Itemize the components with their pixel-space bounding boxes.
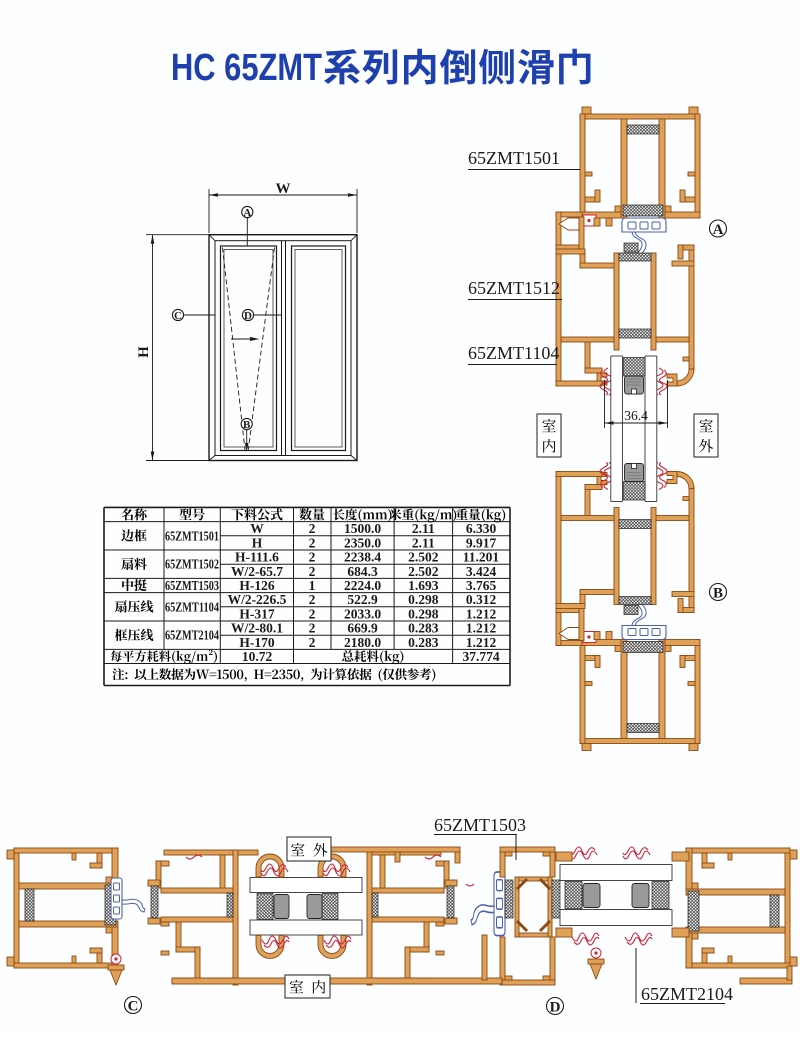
svg-text:65ZMT2104: 65ZMT2104	[165, 628, 219, 643]
svg-text:HC 65ZMT: HC 65ZMT	[171, 47, 322, 89]
svg-text:522.9: 522.9	[347, 592, 378, 607]
svg-text:2.11: 2.11	[412, 535, 435, 550]
svg-text:2.502: 2.502	[408, 550, 439, 565]
svg-text:2: 2	[309, 550, 316, 565]
svg-text:W/2-80.1: W/2-80.1	[231, 621, 283, 636]
svg-text:2: 2	[309, 606, 316, 621]
svg-text:D: D	[244, 310, 252, 322]
svg-text:1.212: 1.212	[466, 635, 497, 650]
svg-text:65ZMT1104: 65ZMT1104	[468, 343, 559, 363]
svg-text:0.283: 0.283	[408, 635, 439, 650]
svg-text:H-317: H-317	[239, 606, 274, 621]
svg-text:684.3: 684.3	[347, 564, 378, 579]
svg-text:D: D	[550, 999, 561, 1015]
svg-text:1.212: 1.212	[466, 621, 497, 636]
svg-text:2: 2	[309, 521, 316, 536]
svg-text:W/2-226.5: W/2-226.5	[228, 592, 287, 607]
svg-text:B: B	[243, 419, 251, 431]
svg-text:65ZMT1512: 65ZMT1512	[468, 278, 560, 298]
svg-text:2: 2	[309, 635, 316, 650]
svg-text:B: B	[713, 585, 723, 601]
svg-text:9.917: 9.917	[466, 535, 497, 550]
svg-text:65ZMT1104: 65ZMT1104	[165, 599, 219, 614]
svg-text:W/2-65.7: W/2-65.7	[231, 564, 283, 579]
svg-text:1.212: 1.212	[466, 606, 497, 621]
svg-text:2: 2	[309, 621, 316, 636]
svg-text:11.201: 11.201	[463, 550, 500, 565]
svg-text:H: H	[136, 346, 152, 358]
svg-text:2238.4: 2238.4	[344, 550, 381, 565]
svg-text:0.298: 0.298	[408, 592, 439, 607]
svg-text:C: C	[174, 310, 182, 322]
svg-text:0.312: 0.312	[466, 592, 497, 607]
svg-text:0.283: 0.283	[408, 621, 439, 636]
svg-text:H-170: H-170	[239, 635, 274, 650]
svg-text:W: W	[250, 521, 264, 536]
svg-text:65ZMT1501: 65ZMT1501	[468, 148, 560, 168]
svg-text:65ZMT1501: 65ZMT1501	[165, 528, 219, 543]
svg-text:10.72: 10.72	[242, 649, 273, 664]
svg-text:2033.0: 2033.0	[344, 606, 381, 621]
svg-text:H: H	[252, 535, 263, 550]
svg-text:6.330: 6.330	[466, 521, 497, 536]
svg-text:65ZMT2104: 65ZMT2104	[641, 984, 733, 1004]
svg-text:2224.0: 2224.0	[344, 578, 381, 593]
svg-text:A: A	[243, 207, 251, 219]
svg-text:2.11: 2.11	[412, 521, 435, 536]
svg-text:3.424: 3.424	[466, 564, 497, 579]
svg-text:65ZMT1503: 65ZMT1503	[434, 815, 526, 835]
svg-text:65ZMT1502: 65ZMT1502	[165, 557, 219, 572]
svg-text:1500.0: 1500.0	[344, 521, 381, 536]
svg-text:A: A	[713, 222, 724, 238]
svg-text:2: 2	[309, 535, 316, 550]
svg-text:H-111.6: H-111.6	[235, 550, 279, 565]
svg-text:2: 2	[309, 592, 316, 607]
svg-text:C: C	[128, 998, 139, 1014]
svg-text:37.774: 37.774	[462, 649, 499, 664]
svg-text:0.298: 0.298	[408, 606, 439, 621]
svg-text:W: W	[276, 181, 291, 197]
svg-text:669.9: 669.9	[347, 621, 378, 636]
svg-text:2350.0: 2350.0	[344, 535, 381, 550]
svg-text:1.693: 1.693	[408, 578, 439, 593]
svg-text:2180.0: 2180.0	[344, 635, 381, 650]
svg-text:36.4: 36.4	[624, 408, 648, 423]
svg-text:3.765: 3.765	[466, 578, 497, 593]
svg-text:1: 1	[309, 578, 316, 593]
svg-text:H-126: H-126	[239, 578, 274, 593]
svg-text:65ZMT1503: 65ZMT1503	[165, 578, 219, 593]
svg-text:2.502: 2.502	[408, 564, 439, 579]
svg-text:2: 2	[309, 564, 316, 579]
